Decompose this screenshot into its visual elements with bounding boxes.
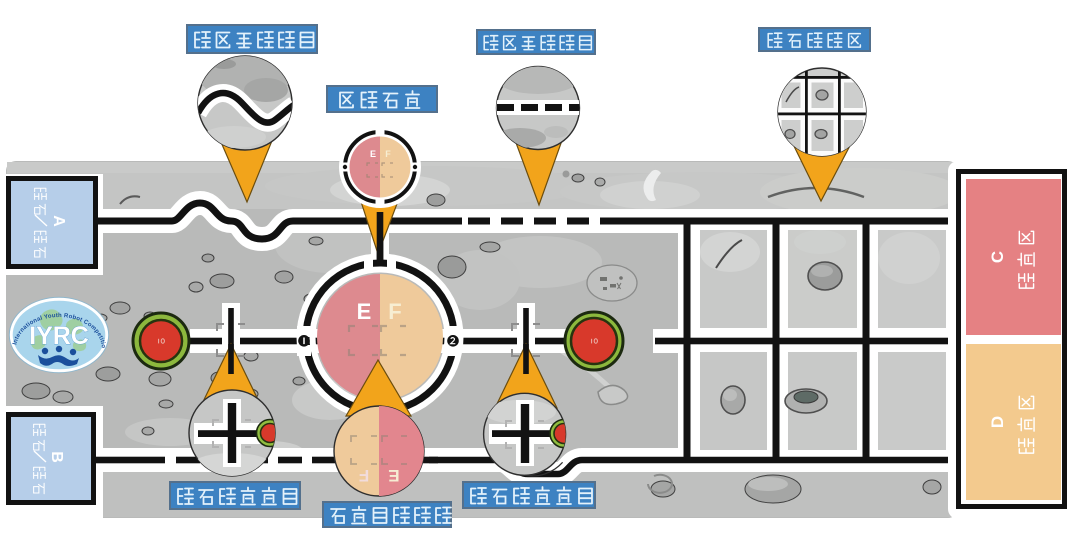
svg-text:F: F: [388, 299, 401, 324]
svg-text:E: E: [388, 466, 399, 485]
svg-text:B: B: [48, 451, 65, 463]
svg-text:A: A: [50, 215, 67, 227]
svg-text:E: E: [357, 299, 372, 324]
svg-text:E: E: [370, 149, 376, 159]
svg-text:C: C: [988, 251, 1007, 263]
svg-text:F: F: [359, 466, 369, 485]
svg-text:F: F: [385, 149, 391, 159]
svg-text:IYRC: IYRC: [29, 322, 89, 350]
svg-text:D: D: [988, 416, 1007, 428]
